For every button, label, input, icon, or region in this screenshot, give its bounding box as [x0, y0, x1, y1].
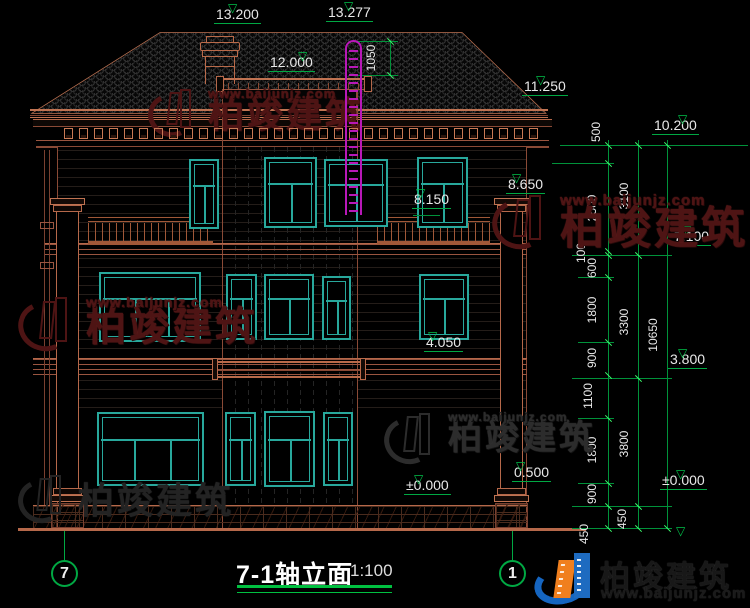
- left-pillar-capital: [53, 205, 82, 212]
- downspout-bracket: [40, 262, 54, 269]
- axis-bubble-1-label: 1: [508, 565, 517, 583]
- dimension-extension-line: [552, 163, 614, 164]
- dimension-label: 900: [585, 484, 599, 504]
- watermark-building-icon: [180, 89, 190, 127]
- watermark-building-icon: [50, 475, 60, 513]
- elevation-value: 12.000: [268, 54, 315, 72]
- dimension-extension-line: [413, 215, 440, 216]
- elevation-value: 13.200: [214, 6, 261, 24]
- floor-band-3f: [45, 243, 527, 258]
- window: [264, 411, 315, 487]
- watermark-building-icon: [55, 297, 67, 341]
- cornice-dentil: [319, 128, 328, 139]
- cornice-dentil: [274, 128, 283, 139]
- dimension-label: 900: [585, 348, 599, 368]
- dimension-label: 600: [585, 258, 599, 278]
- window-mullion: [290, 441, 292, 482]
- elevation-triangle-icon: ▽: [416, 188, 425, 198]
- cornice-dentil: [364, 128, 373, 139]
- title-underline-thin: [237, 592, 392, 593]
- cornice-dentil: [334, 128, 343, 139]
- elevation-value: 10.200: [652, 117, 699, 135]
- dimension-label: 450: [577, 524, 591, 544]
- cornice-dentil: [229, 128, 238, 139]
- dimension-label: 1800: [585, 297, 599, 324]
- elevation-triangle-icon: ▽: [536, 75, 545, 85]
- cornice-dentil: [214, 128, 223, 139]
- watermark-logo-icon: [384, 412, 440, 468]
- window-mullion: [291, 185, 293, 223]
- elevation-triangle-icon: ▽: [676, 524, 685, 538]
- entrance-canopy: [214, 361, 364, 378]
- elevation-triangle-icon: ▽: [512, 173, 521, 183]
- elevation-value: ±0.000: [404, 477, 451, 495]
- cornice-dentil: [259, 128, 268, 139]
- cornice-dentil: [169, 128, 178, 139]
- axis-bubble-7-label: 7: [60, 565, 69, 583]
- dimension-label: 1050: [364, 45, 378, 72]
- watermark-logo-icon: [18, 296, 78, 356]
- cornice-dentil: [184, 128, 193, 139]
- axis-line-7: [64, 531, 65, 562]
- watermark-url: www.baijunjz.com: [86, 294, 223, 310]
- right-pillar-stone-base: [495, 503, 528, 528]
- elevation-triangle-icon: ▽: [516, 461, 525, 471]
- cornice-dentil: [469, 128, 478, 139]
- cornice-dentil: [409, 128, 418, 139]
- dimension-chain-line: [390, 40, 391, 76]
- left-pillar-capital-top: [50, 198, 85, 205]
- window-mullion: [241, 441, 243, 481]
- cornice-dentil: [109, 128, 118, 139]
- dimension-label: 450: [615, 509, 629, 529]
- cornice-dentil: [154, 128, 163, 139]
- window-mullion: [444, 300, 446, 335]
- parapet-post: [364, 76, 372, 92]
- ground-line: [18, 528, 586, 531]
- window-mullion: [338, 441, 340, 481]
- dimension-label: 3800: [617, 431, 631, 458]
- cornice-dentil: [289, 128, 298, 139]
- elevation-triangle-icon: ▽: [678, 348, 687, 358]
- cornice-dentil: [514, 128, 523, 139]
- dimension-label: 1100: [581, 383, 595, 409]
- cornice-dentil: [79, 128, 88, 139]
- canopy-end-left: [212, 358, 218, 380]
- cornice-dentil: [139, 128, 148, 139]
- elevation-triangle-icon: ▽: [678, 114, 687, 124]
- cornice-dentil: [124, 128, 133, 139]
- watermark-url: www.baijunjz.com: [448, 410, 568, 424]
- cornice-dentil: [379, 128, 388, 139]
- cornice-dentil: [454, 128, 463, 139]
- axis-line-1: [512, 531, 513, 562]
- cornice-dentil: [94, 128, 103, 139]
- window: [419, 274, 469, 340]
- watermark-logo-icon: [492, 194, 552, 254]
- elevation-triangle-icon: ▽: [228, 3, 237, 13]
- dimension-label: 3300: [617, 309, 631, 336]
- axis-bubble-7: 7: [51, 560, 78, 587]
- axis-bubble-1: 1: [499, 560, 526, 587]
- cornice-dentil: [304, 128, 313, 139]
- window-mullion: [289, 300, 291, 335]
- cornice-dentil: [439, 128, 448, 139]
- cornice-dentil: [394, 128, 403, 139]
- chimney-shaft: [205, 56, 235, 84]
- watermark-building-icon: [529, 195, 541, 239]
- watermark-logo-icon: [18, 474, 70, 526]
- logo-url: www.baijunjz.com: [601, 585, 746, 602]
- logo-building-blue-icon: [574, 553, 590, 598]
- title-underline-thick: [237, 585, 392, 588]
- window-mullion: [204, 187, 206, 224]
- window: [323, 412, 353, 486]
- dimension-extension-line: [572, 378, 672, 379]
- right-pillar-base-cap: [494, 495, 529, 502]
- watermark-url: www.baijunjz.com: [208, 86, 336, 101]
- elevation-triangle-icon: ▽: [298, 51, 307, 61]
- watermark-building-icon: [419, 413, 430, 454]
- downspout-bracket: [40, 222, 54, 229]
- cad-elevation-canvas: 1050500250010060018009001100180090045031…: [0, 0, 750, 608]
- watermark-brand: 柏竣建筑: [78, 472, 234, 524]
- elevation-triangle-icon: ▽: [344, 1, 353, 11]
- dimension-extension-line: [572, 506, 672, 507]
- window: [264, 274, 314, 340]
- cornice-dentil: [199, 128, 208, 139]
- cornice-dentil: [529, 128, 538, 139]
- cornice-dentil: [424, 128, 433, 139]
- cornice-dentil: [244, 128, 253, 139]
- drawing-scale: 1:100: [350, 561, 393, 581]
- elevation-triangle-icon: ▽: [414, 474, 423, 484]
- window: [189, 159, 219, 229]
- cornice-dentil: [64, 128, 73, 139]
- elevation-triangle-icon: ▽: [428, 331, 437, 341]
- dimension-label: 500: [589, 122, 603, 142]
- watermark-url: www.baijunjz.com: [560, 192, 705, 209]
- dimension-extension-line: [560, 145, 748, 146]
- canopy-end-right: [360, 358, 366, 380]
- dimension-label: 10650: [646, 318, 660, 351]
- cornice-dentil: [484, 128, 493, 139]
- cornice-dentil: [499, 128, 508, 139]
- roof-access-ladder: [345, 40, 362, 215]
- elevation-value: 3.800: [668, 351, 707, 369]
- right-pillar-base-cap-top: [497, 488, 526, 495]
- window-mullion: [337, 302, 339, 335]
- ladder-rungs: [349, 50, 358, 212]
- window-transom-bar: [101, 439, 200, 441]
- elevation-triangle-icon: ▽: [676, 469, 685, 479]
- window: [322, 276, 351, 340]
- window: [264, 157, 317, 228]
